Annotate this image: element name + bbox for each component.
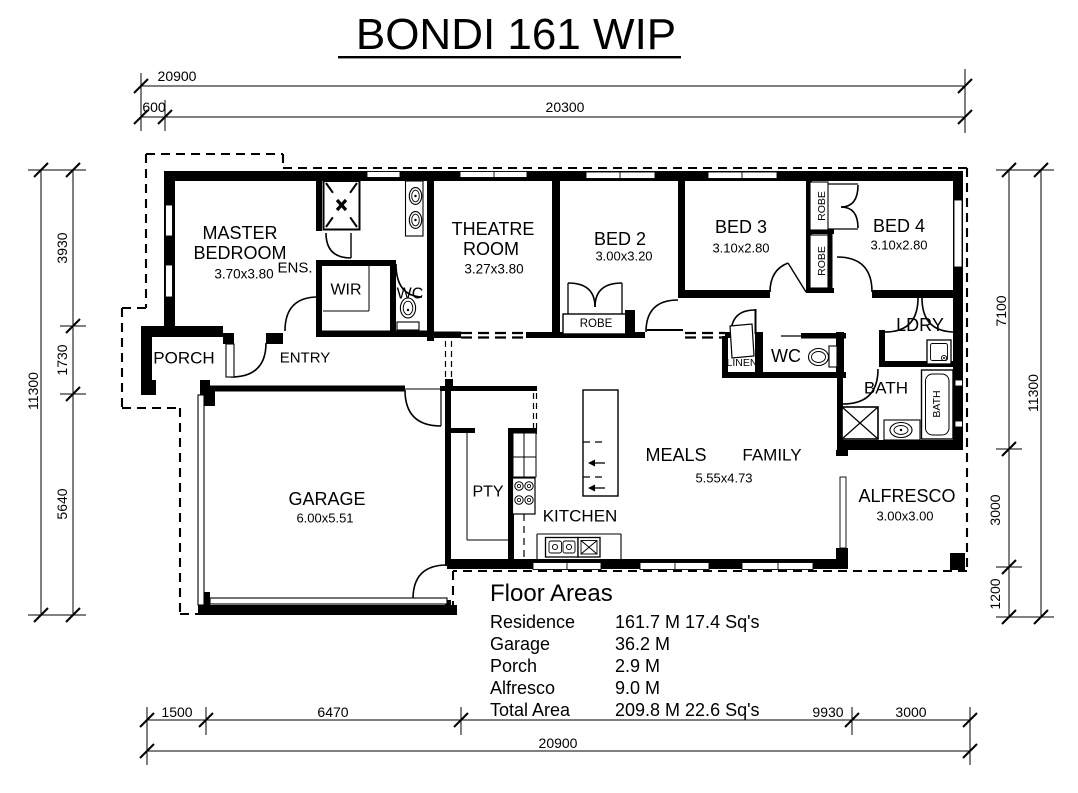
- svg-text:ROBE: ROBE: [816, 191, 828, 221]
- svg-text:MASTER: MASTER: [202, 223, 277, 243]
- svg-text:5640: 5640: [54, 488, 70, 519]
- svg-text:3.00x3.20: 3.00x3.20: [595, 249, 652, 264]
- svg-text:ENS.: ENS.: [277, 260, 312, 277]
- svg-text:11300: 11300: [1025, 374, 1041, 412]
- svg-text:3000: 3000: [895, 704, 926, 720]
- svg-text:THEATRE: THEATRE: [452, 219, 535, 239]
- svg-text:600: 600: [142, 99, 166, 115]
- svg-text:ROOM: ROOM: [463, 239, 519, 259]
- svg-text:3000: 3000: [987, 494, 1003, 525]
- svg-text:ALFRESCO: ALFRESCO: [858, 486, 955, 506]
- svg-text:BATH: BATH: [931, 390, 943, 417]
- svg-text:FAMILY: FAMILY: [742, 446, 801, 465]
- svg-text:PORCH: PORCH: [153, 349, 214, 368]
- svg-text:PTY: PTY: [472, 484, 503, 501]
- svg-text:20900: 20900: [158, 68, 197, 84]
- svg-text:1500: 1500: [161, 704, 192, 720]
- svg-text:3.10x2.80: 3.10x2.80: [712, 241, 769, 256]
- svg-text:161.7 M 17.4 Sq's: 161.7 M 17.4 Sq's: [615, 612, 760, 632]
- svg-text:BEDROOM: BEDROOM: [193, 243, 286, 263]
- svg-text:LDRY: LDRY: [896, 315, 944, 335]
- svg-text:209.8 M 22.6 Sq's: 209.8 M 22.6 Sq's: [615, 700, 760, 720]
- svg-text:GARAGE: GARAGE: [288, 489, 365, 509]
- svg-text:Residence: Residence: [490, 612, 575, 632]
- svg-text:ENTRY: ENTRY: [280, 350, 331, 367]
- svg-text:5.55x4.73: 5.55x4.73: [695, 471, 752, 486]
- svg-text:9.0 M: 9.0 M: [615, 678, 660, 698]
- svg-text:3.27x3.80: 3.27x3.80: [464, 262, 523, 277]
- svg-text:2.9 M: 2.9 M: [615, 656, 660, 676]
- svg-text:20900: 20900: [539, 735, 578, 751]
- svg-text:WC: WC: [771, 346, 801, 366]
- svg-text:BED 4: BED 4: [873, 216, 925, 236]
- svg-text:BONDI 161 WIP: BONDI 161 WIP: [356, 10, 676, 59]
- svg-text:11300: 11300: [25, 372, 41, 410]
- svg-text:1730: 1730: [54, 344, 70, 375]
- svg-text:Alfresco: Alfresco: [490, 678, 555, 698]
- svg-text:36.2 M: 36.2 M: [615, 634, 670, 654]
- svg-text:6470: 6470: [317, 704, 348, 720]
- svg-text:ROBE: ROBE: [816, 246, 828, 276]
- svg-text:20300: 20300: [546, 99, 585, 115]
- svg-text:LINEN: LINEN: [727, 357, 758, 369]
- svg-text:3930: 3930: [54, 232, 70, 263]
- svg-text:BATH: BATH: [864, 379, 908, 398]
- svg-text:WC: WC: [397, 286, 424, 303]
- svg-text:BED 2: BED 2: [594, 229, 646, 249]
- svg-text:3.70x3.80: 3.70x3.80: [214, 267, 273, 282]
- svg-text:Porch: Porch: [490, 656, 537, 676]
- svg-text:9930: 9930: [812, 704, 843, 720]
- svg-text:3.10x2.80: 3.10x2.80: [870, 238, 927, 253]
- svg-text:MEALS: MEALS: [645, 445, 706, 465]
- svg-text:Garage: Garage: [490, 634, 550, 654]
- svg-text:1200: 1200: [987, 578, 1003, 609]
- svg-text:7100: 7100: [993, 295, 1009, 326]
- svg-text:3.00x3.00: 3.00x3.00: [876, 509, 933, 524]
- svg-text:KITCHEN: KITCHEN: [543, 507, 618, 526]
- svg-text:Floor Areas: Floor Areas: [490, 580, 613, 607]
- svg-text:6.00x5.51: 6.00x5.51: [296, 511, 353, 526]
- svg-text:BED 3: BED 3: [715, 217, 767, 237]
- svg-text:WIR: WIR: [330, 282, 361, 299]
- svg-text:ROBE: ROBE: [580, 318, 613, 330]
- svg-text:Total Area: Total Area: [490, 700, 571, 720]
